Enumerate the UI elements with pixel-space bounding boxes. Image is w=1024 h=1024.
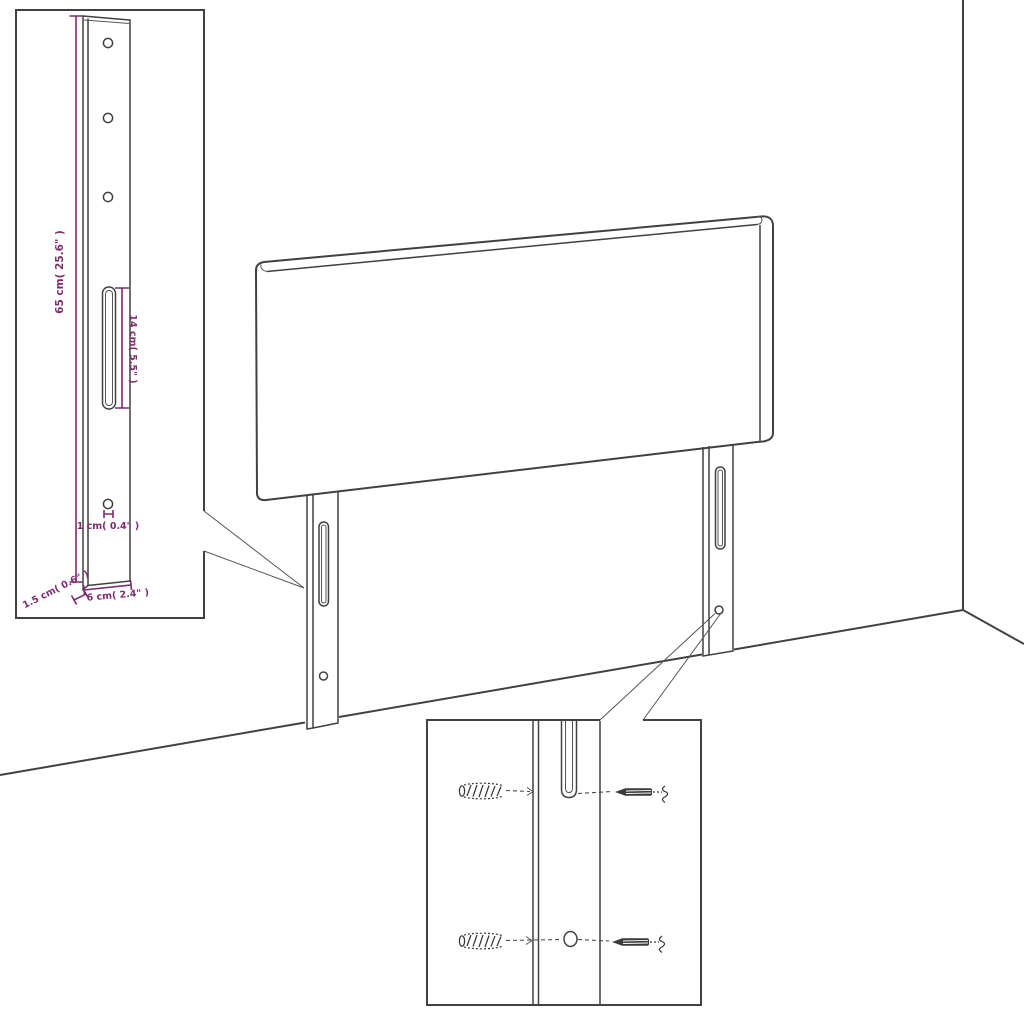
leg-width-label: 6 cm( 2.4" ) bbox=[86, 587, 149, 603]
alignment-dashes bbox=[506, 788, 612, 945]
inset-leg bbox=[83, 16, 130, 590]
wall-corner bbox=[0, 0, 1024, 775]
inset-leg-slot bbox=[103, 287, 116, 409]
headboard-top-roll bbox=[267, 225, 757, 272]
left-leg-outline bbox=[307, 491, 338, 729]
dimension-inset-box: 65 cm( 25.6" ) 14 cm( 5.5" ) 1 cm( 0.4" … bbox=[16, 10, 204, 618]
right-leg-slot bbox=[716, 467, 726, 549]
mounting-hole bbox=[564, 932, 577, 947]
mounting-slot bbox=[562, 721, 577, 798]
hardware-inset-border bbox=[427, 720, 701, 1005]
inset-leg-hole-3 bbox=[103, 192, 112, 201]
inset-leg-hole-1 bbox=[103, 38, 112, 47]
headboard-left-curl bbox=[261, 265, 267, 272]
headboard-left-leg bbox=[307, 491, 338, 729]
headboard bbox=[256, 216, 773, 500]
inset-leg-bottom-hole bbox=[103, 499, 112, 508]
leg-thickness-label: 1.5 cm( 0.6" ) bbox=[21, 568, 91, 611]
left-leg-slot bbox=[319, 522, 329, 606]
left-leg-hole bbox=[320, 672, 328, 680]
leg-thickness-dimension: 1.5 cm( 0.6" ) bbox=[21, 568, 91, 611]
diagram-canvas: 65 cm( 25.6" ) 14 cm( 5.5" ) 1 cm( 0.4" … bbox=[0, 0, 1024, 1024]
hardware-callout-wedge bbox=[600, 614, 720, 721]
leg-height-dimension: 65 cm( 25.6" ) bbox=[54, 16, 83, 582]
right-leg-hole bbox=[715, 606, 723, 614]
headboard-right-leg bbox=[703, 444, 733, 656]
hole-diameter-label: 1 cm( 0.4" ) bbox=[77, 521, 140, 532]
dimension-callout-wedge bbox=[204, 511, 304, 588]
screw-icon bbox=[612, 936, 665, 953]
inset-leg-top-cap bbox=[84, 20, 129, 24]
wall-plug-icon bbox=[459, 933, 502, 949]
inset-leg-outline bbox=[83, 16, 130, 590]
product-diagram-page: 65 cm( 25.6" ) 14 cm( 5.5" ) 1 cm( 0.4" … bbox=[0, 0, 1024, 1024]
hardware-inset-box bbox=[427, 720, 701, 1005]
leg-width-dimension: 6 cm( 2.4" ) bbox=[84, 580, 150, 604]
inset-leg-hole-2 bbox=[103, 113, 112, 122]
floor-line-left bbox=[0, 610, 963, 775]
slot-length-dimension: 14 cm( 5.5" ) bbox=[115, 288, 138, 408]
wall-plug-icon bbox=[459, 783, 502, 799]
leg-height-label: 65 cm( 25.6" ) bbox=[54, 230, 66, 314]
inset-leg-strip bbox=[533, 721, 600, 1004]
floor-line-right bbox=[963, 610, 1024, 644]
mounting-slot-inner bbox=[566, 721, 573, 793]
left-leg-slot-inner bbox=[322, 525, 327, 603]
headboard-outline bbox=[256, 216, 773, 500]
slot-length-label: 14 cm( 5.5" ) bbox=[127, 314, 138, 383]
inset-leg-slot-inner bbox=[106, 291, 113, 406]
right-leg-slot-inner bbox=[718, 470, 723, 546]
inset-leg-strip-edges bbox=[533, 721, 600, 1004]
screw-icon bbox=[615, 786, 668, 803]
